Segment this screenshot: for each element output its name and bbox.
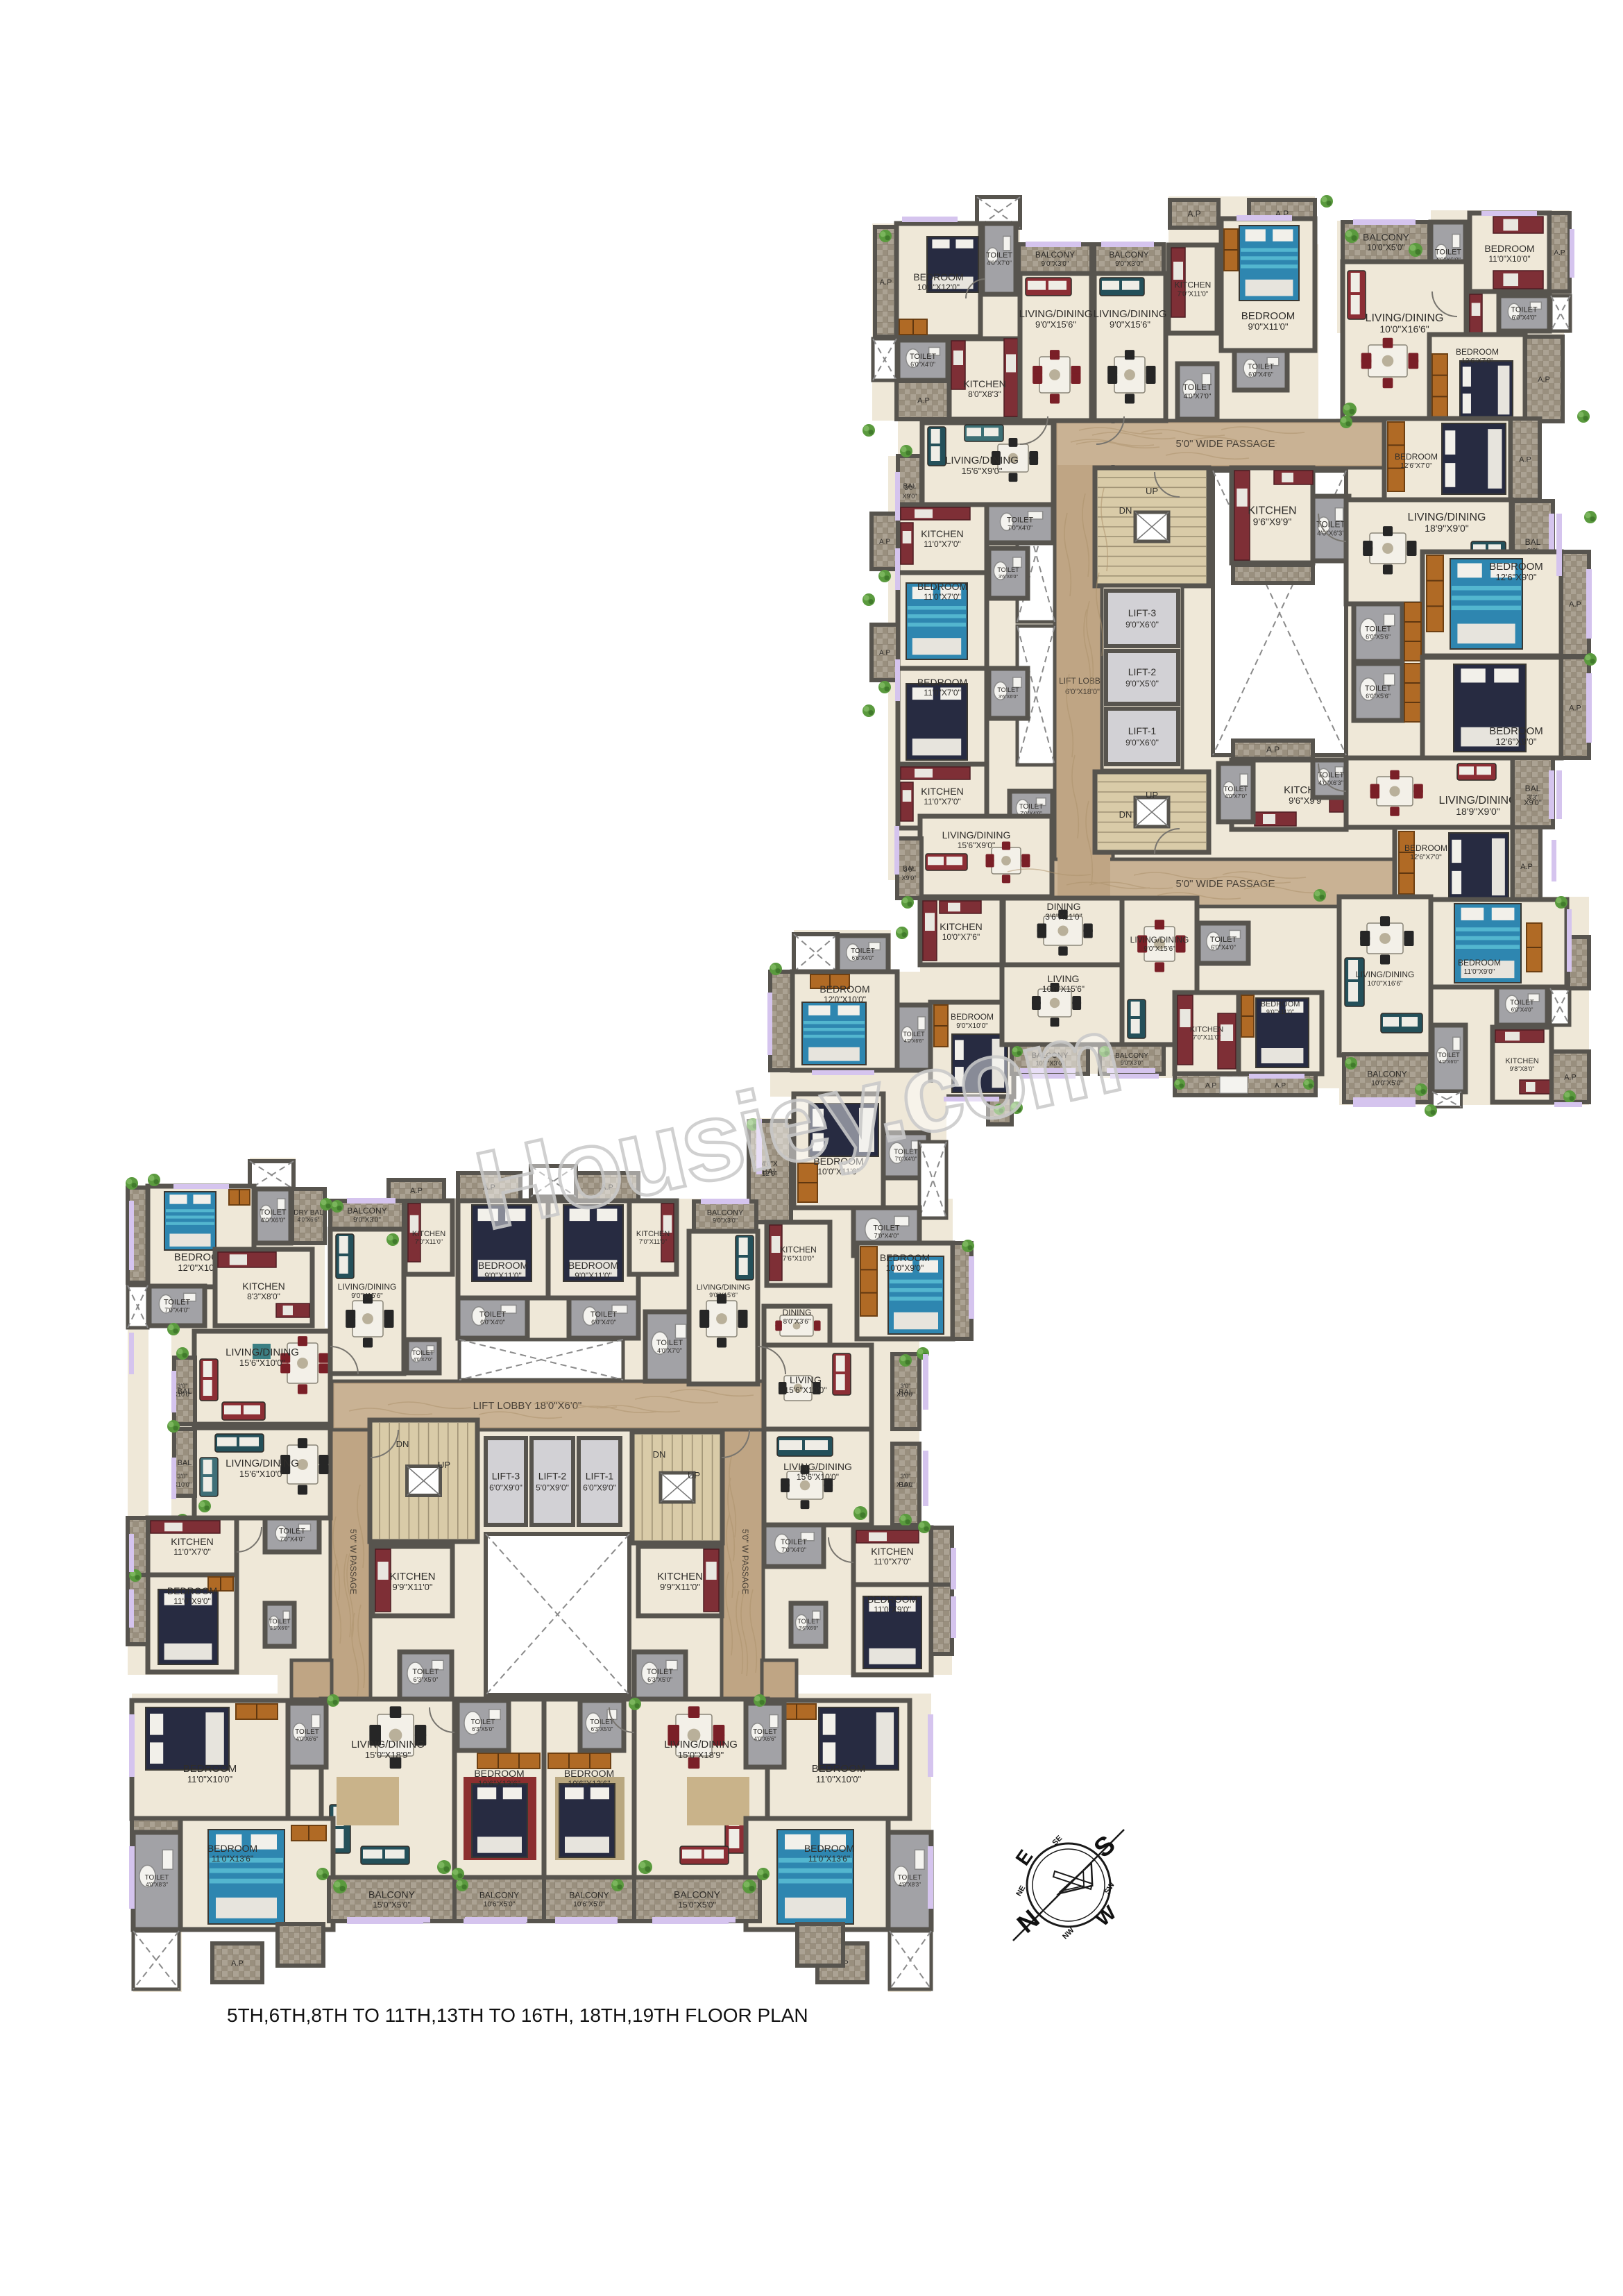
svg-text:TOILET: TOILET [1210, 936, 1237, 944]
svg-text:3'0": 3'0" [901, 1473, 911, 1480]
svg-text:11'0"X9'0": 11'0"X9'0" [1464, 968, 1495, 976]
svg-text:BEDROOM: BEDROOM [1489, 561, 1543, 573]
svg-text:3'0": 3'0" [904, 866, 915, 873]
svg-text:UP: UP [688, 1470, 700, 1480]
svg-text:BEDROOM: BEDROOM [880, 1252, 930, 1263]
svg-text:LIFT-2: LIFT-2 [1128, 666, 1157, 677]
svg-text:KITCHEN: KITCHEN [921, 786, 963, 797]
svg-text:KITCHEN: KITCHEN [871, 1546, 913, 1557]
svg-text:TOILET: TOILET [647, 1668, 674, 1676]
svg-text:4'0"X7'0": 4'0"X7'0" [657, 1347, 682, 1354]
svg-text:4'0"X6'0": 4'0"X6'0" [261, 1217, 286, 1224]
svg-text:6'0"X5'6": 6'0"X5'6" [1366, 693, 1391, 700]
svg-text:6'3"X5'0": 6'3"X5'0" [414, 1676, 439, 1683]
svg-text:TOILET: TOILET [851, 947, 875, 955]
svg-text:9'0"X3'0": 9'0"X3'0" [1121, 1060, 1143, 1066]
svg-text:10'6"X5'0": 10'6"X5'0" [484, 1901, 516, 1909]
svg-text:BALCONY: BALCONY [1367, 1070, 1407, 1079]
svg-text:BEDROOM: BEDROOM [564, 1768, 614, 1779]
svg-text:KITCHEN: KITCHEN [171, 1536, 213, 1547]
svg-text:KITCHEN: KITCHEN [412, 1230, 445, 1238]
svg-text:TOILET: TOILET [1365, 625, 1392, 634]
svg-text:12'0"X10'0": 12'0"X10'0" [824, 995, 866, 1004]
svg-text:KITCHEN: KITCHEN [1248, 505, 1296, 517]
svg-text:15'0"X5'0": 15'0"X5'0" [678, 1900, 715, 1910]
svg-text:7'6"X10'0": 7'6"X10'0" [783, 1256, 815, 1263]
svg-text:BEDROOM: BEDROOM [804, 1843, 854, 1854]
svg-text:11'0"X7'0": 11'0"X7'0" [924, 797, 961, 807]
svg-text:DINING: DINING [1047, 901, 1081, 912]
svg-text:11'0"X7'0": 11'0"X7'0" [173, 1547, 211, 1557]
svg-text:9'0"X11'0": 9'0"X11'0" [1248, 321, 1288, 332]
svg-text:8'0"X3'6": 8'0"X3'6" [783, 1318, 811, 1326]
svg-text:10'0"X16'6": 10'0"X16'6" [1379, 323, 1429, 335]
svg-text:LIVING/DINING: LIVING/DINING [664, 1739, 738, 1750]
svg-text:TOILET: TOILET [269, 1618, 291, 1625]
svg-text:9'0"X15'6": 9'0"X15'6" [1110, 319, 1150, 330]
svg-text:BEDROOM: BEDROOM [1484, 243, 1534, 254]
svg-text:10'6"X5'0": 10'6"X5'0" [573, 1901, 605, 1909]
svg-text:9'6"X9'9": 9'6"X9'9" [1253, 516, 1292, 527]
svg-text:TOILET: TOILET [1510, 999, 1534, 1007]
svg-text:BALCONY: BALCONY [479, 1891, 519, 1900]
svg-text:7'0"X4'0": 7'0"X4'0" [1008, 525, 1033, 532]
svg-text:7'0"X11'0": 7'0"X11'0" [1178, 291, 1209, 298]
svg-text:A.P: A.P [231, 1959, 244, 1968]
svg-text:6'0"X4'0": 6'0"X4'0" [1211, 944, 1236, 951]
svg-text:15'6"X10'0": 15'6"X10'0" [239, 1358, 286, 1368]
svg-text:TOILET: TOILET [910, 353, 937, 361]
svg-text:12'6"X7'0": 12'6"X7'0" [1410, 854, 1442, 861]
svg-text:9'0"X6'0": 9'0"X6'0" [1125, 620, 1159, 630]
svg-text:4'0"X6'0": 4'0"X6'0" [1439, 1060, 1459, 1065]
svg-text:BEDROOM: BEDROOM [917, 581, 967, 592]
svg-text:BEDROOM: BEDROOM [1241, 310, 1295, 322]
svg-text:7'0"X11'0": 7'0"X11'0" [415, 1238, 443, 1245]
svg-text:12'6"X9'0": 12'6"X9'0" [1495, 572, 1536, 582]
svg-text:18'9"X9'0": 18'9"X9'0" [1425, 523, 1469, 534]
svg-text:DRY BAL: DRY BAL [294, 1209, 323, 1217]
svg-text:3'6"X6'0": 3'6"X6'0" [999, 575, 1018, 580]
svg-text:A.P: A.P [1564, 1073, 1577, 1081]
svg-text:BEDROOM: BEDROOM [183, 1763, 237, 1775]
svg-text:6'0"X4'6": 6'0"X4'6" [1248, 371, 1273, 378]
svg-text:4'0"X8'3": 4'0"X8'3" [146, 1882, 168, 1888]
svg-text:9'0"X6'0": 9'0"X6'0" [1125, 738, 1159, 748]
svg-text:5'0" W PASSAGE: 5'0" W PASSAGE [348, 1529, 358, 1594]
svg-text:TOILET: TOILET [656, 1339, 683, 1347]
svg-text:4'0"X6'3": 4'0"X6'3" [1318, 779, 1343, 786]
svg-text:11'0"X10'0": 11'0"X10'0" [1488, 254, 1530, 264]
svg-text:TOILET: TOILET [797, 1618, 819, 1625]
svg-text:TOILET: TOILET [295, 1728, 319, 1736]
svg-text:BAL: BAL [178, 1459, 192, 1467]
svg-text:LIVING/DINING: LIVING/DINING [226, 1458, 299, 1469]
svg-text:11'0"X9'0": 11'0"X9'0" [173, 1596, 211, 1606]
svg-text:9'0"X3'0": 9'0"X3'0" [713, 1217, 738, 1224]
svg-text:TOILET: TOILET [145, 1874, 169, 1882]
svg-text:7'0"X4'0": 7'0"X4'0" [164, 1307, 189, 1314]
svg-text:8'3"X8'0": 8'3"X8'0" [247, 1292, 280, 1301]
svg-text:9'0"X15'6": 9'0"X15'6" [709, 1292, 738, 1299]
svg-text:LIVING/DINING: LIVING/DINING [1094, 308, 1167, 320]
svg-text:LIFT LOBBY: LIFT LOBBY [1059, 676, 1106, 686]
svg-text:10'6"X13'6": 10'6"X13'6" [478, 1779, 520, 1789]
svg-text:6'3"X5'0": 6'3"X5'0" [472, 1726, 494, 1732]
svg-text:6'0"X4'0": 6'0"X4'0" [1512, 314, 1537, 321]
svg-text:DN: DN [1119, 809, 1132, 820]
svg-text:TOILET: TOILET [873, 1224, 900, 1233]
svg-text:KITCHEN: KITCHEN [636, 1230, 670, 1238]
svg-text:11'0"X7'0": 11'0"X7'0" [924, 539, 961, 549]
svg-text:LIVING/DINING: LIVING/DINING [226, 1347, 299, 1358]
svg-text:4'0"X7'0": 4'0"X7'0" [1184, 393, 1212, 400]
svg-text:10'0"X7'6": 10'0"X7'6" [942, 932, 980, 942]
svg-text:BEDROOM: BEDROOM [1395, 452, 1438, 462]
svg-text:11'0"X7'0": 11'0"X7'0" [874, 1557, 911, 1567]
svg-text:10'0"X12'0": 10'0"X12'0" [917, 282, 960, 292]
svg-text:TOILET: TOILET [1435, 248, 1462, 257]
svg-text:LIFT-2: LIFT-2 [538, 1471, 567, 1482]
svg-text:9'0"X15'6": 9'0"X15'6" [1035, 319, 1076, 330]
svg-text:LIFT-1: LIFT-1 [586, 1471, 614, 1482]
svg-text:LIVING/DINING: LIVING/DINING [1130, 935, 1189, 945]
svg-text:3'0": 3'0" [905, 484, 915, 491]
svg-text:TOILET: TOILET [590, 1310, 618, 1319]
svg-text:BEDROOM: BEDROOM [819, 984, 869, 995]
svg-text:TOILET: TOILET [1007, 516, 1034, 525]
svg-text:4'0"X7'0": 4'0"X7'0" [1225, 793, 1247, 800]
svg-text:BALCONY: BALCONY [1363, 232, 1410, 243]
svg-text:9'0"X5'0": 9'0"X5'0" [1125, 679, 1159, 689]
svg-text:7'0"X11'0": 7'0"X11'0" [639, 1238, 667, 1245]
svg-text:6'6"X4'0": 6'6"X4'0" [852, 955, 874, 961]
svg-text:LIVING: LIVING [790, 1374, 822, 1385]
svg-text:12'6"X9'0": 12'6"X9'0" [1495, 736, 1536, 747]
svg-text:7'0"X11'0": 7'0"X11'0" [1193, 1034, 1221, 1041]
svg-text:6'0"X9'0": 6'0"X9'0" [583, 1483, 616, 1493]
svg-text:KITCHEN: KITCHEN [242, 1281, 284, 1292]
svg-text:4'0"X7'0": 4'0"X7'0" [414, 1358, 433, 1362]
svg-text:BEDROOM: BEDROOM [1489, 725, 1543, 737]
svg-text:X10'0": X10'0" [897, 1481, 915, 1488]
svg-text:4'0"X6'6": 4'0"X6'6" [754, 1736, 776, 1742]
svg-text:TOILET: TOILET [1183, 382, 1212, 392]
svg-text:9'0"X11'0": 9'0"X11'0" [575, 1271, 612, 1281]
svg-text:3'6"X11'0": 3'6"X11'0" [1045, 912, 1082, 922]
svg-text:BEDROOM: BEDROOM [207, 1843, 257, 1854]
svg-text:TOILET: TOILET [479, 1310, 507, 1319]
svg-text:TOILET: TOILET [164, 1299, 191, 1307]
svg-text:BEDROOM: BEDROOM [478, 1260, 528, 1271]
svg-text:A.P: A.P [1266, 745, 1280, 754]
svg-text:BAL: BAL [1525, 784, 1541, 793]
svg-text:LIVING/DINING: LIVING/DINING [1356, 970, 1415, 979]
svg-text:7'0"X4'0": 7'0"X4'0" [781, 1546, 806, 1553]
svg-text:TOILET: TOILET [997, 566, 1019, 573]
svg-text:BEDROOM: BEDROOM [167, 1585, 217, 1596]
svg-text:KITCHEN: KITCHEN [1175, 280, 1212, 290]
svg-text:9'0"X3'0": 9'0"X3'0" [353, 1217, 381, 1224]
svg-text:A.P: A.P [1569, 704, 1581, 712]
svg-text:BEDROOM: BEDROOM [568, 1260, 618, 1271]
svg-text:9'0"X11'0": 9'0"X11'0" [484, 1271, 522, 1281]
svg-text:10'6"X13'6": 10'6"X13'6" [568, 1779, 610, 1789]
svg-text:TOILET: TOILET [781, 1538, 808, 1546]
svg-text:TOILET: TOILET [260, 1208, 287, 1217]
svg-text:X9'0": X9'0" [1524, 799, 1542, 807]
svg-text:X10'0": X10'0" [897, 1391, 915, 1398]
svg-text:6'0"X4'0": 6'0"X4'0" [910, 361, 935, 368]
svg-text:A.P: A.P [410, 1187, 423, 1195]
svg-text:KITCHEN: KITCHEN [657, 1571, 703, 1582]
svg-text:3'0": 3'0" [178, 1383, 188, 1390]
svg-text:15'6"X9'0": 15'6"X9'0" [958, 841, 995, 850]
svg-text:5'0" WIDE PASSAGE: 5'0" WIDE PASSAGE [1176, 878, 1275, 890]
svg-text:15'0"X5'0": 15'0"X5'0" [373, 1900, 410, 1910]
svg-text:BEDROOM: BEDROOM [812, 1763, 866, 1775]
svg-text:KITCHEN: KITCHEN [940, 921, 982, 932]
svg-text:BEDROOM: BEDROOM [1404, 843, 1447, 853]
svg-text:DN: DN [396, 1439, 409, 1449]
svg-text:KITCHEN: KITCHEN [921, 528, 963, 539]
svg-text:A.P: A.P [880, 278, 892, 287]
svg-text:DINING: DINING [783, 1308, 812, 1317]
svg-text:15'0"X18'9": 15'0"X18'9" [365, 1750, 411, 1760]
svg-text:6'3"X5'0": 6'3"X5'0" [647, 1676, 672, 1683]
svg-text:LIVING/DINING: LIVING/DINING [783, 1461, 852, 1472]
svg-text:LIVING/DINING: LIVING/DINING [1439, 795, 1518, 807]
svg-text:TOILET: TOILET [1248, 363, 1275, 371]
svg-text:3'6"X6'0": 3'6"X6'0" [799, 1626, 818, 1631]
svg-text:15'6"X10'0": 15'6"X10'0" [784, 1385, 826, 1395]
svg-text:BALCONY: BALCONY [368, 1889, 416, 1900]
svg-text:4'0"X8'3": 4'0"X8'3" [899, 1882, 921, 1888]
svg-text:BEDROOM: BEDROOM [917, 677, 967, 688]
svg-text:10'0"X5'0": 10'0"X5'0" [1371, 1080, 1403, 1088]
svg-text:15'6"X10'0": 15'6"X10'0" [239, 1469, 286, 1479]
svg-text:BALCONY: BALCONY [1115, 1052, 1148, 1060]
svg-text:15'6"X10'0": 15'6"X10'0" [797, 1472, 839, 1482]
svg-text:KITCHEN: KITCHEN [390, 1571, 436, 1582]
svg-text:UP: UP [438, 1460, 450, 1470]
svg-text:KITCHEN: KITCHEN [1190, 1026, 1223, 1034]
svg-text:3'6"X6'0": 3'6"X6'0" [270, 1626, 289, 1631]
svg-text:TOILET: TOILET [1438, 1052, 1460, 1058]
svg-text:11'0"X13'6": 11'0"X13'6" [808, 1854, 850, 1864]
svg-text:A.P: A.P [1569, 600, 1581, 609]
svg-text:4'0"X6'6": 4'0"X6'6" [296, 1736, 318, 1742]
svg-text:4'0"X7'0": 4'0"X7'0" [987, 260, 1012, 267]
svg-text:BALCONY: BALCONY [707, 1209, 744, 1217]
svg-text:12'6"X7'0": 12'6"X7'0" [1400, 462, 1432, 470]
svg-text:5'0"X9'0": 5'0"X9'0" [536, 1483, 569, 1493]
svg-text:3'0": 3'0" [178, 1473, 188, 1480]
svg-text:TOILET: TOILET [1511, 306, 1538, 314]
svg-text:11'0"X7'0": 11'0"X7'0" [924, 592, 961, 602]
svg-text:11'0"X13'6": 11'0"X13'6" [212, 1854, 253, 1864]
svg-text:TOILET: TOILET [753, 1728, 777, 1736]
svg-text:X9'0": X9'0" [902, 875, 917, 881]
svg-text:BEDROOM: BEDROOM [867, 1594, 917, 1605]
svg-text:15'0"X18'9": 15'0"X18'9" [678, 1750, 724, 1760]
svg-text:9'8"X8'0": 9'8"X8'0" [1510, 1065, 1535, 1072]
svg-text:LIVING/DINING: LIVING/DINING [697, 1283, 751, 1292]
svg-text:A.P: A.P [879, 539, 890, 546]
svg-text:9'0"X3'0": 9'0"X3'0" [1115, 260, 1143, 268]
svg-text:TOILET: TOILET [279, 1528, 306, 1536]
svg-text:A.P: A.P [1519, 455, 1531, 464]
svg-text:6'0"X4'0": 6'0"X4'0" [591, 1319, 616, 1326]
svg-text:UP: UP [1146, 486, 1158, 496]
svg-text:UP: UP [1146, 790, 1158, 800]
svg-text:15'6"X9'0": 15'6"X9'0" [961, 466, 1002, 476]
svg-text:BEDROOM: BEDROOM [1458, 958, 1501, 968]
svg-text:TOILET: TOILET [898, 1874, 922, 1882]
svg-text:LIVING/DINING: LIVING/DINING [338, 1282, 397, 1292]
svg-text:KITCHEN: KITCHEN [1505, 1057, 1538, 1065]
svg-text:A.P: A.P [879, 650, 890, 657]
svg-text:8'0"X8'3": 8'0"X8'3" [968, 389, 1001, 399]
svg-text:6'0"X18'0": 6'0"X18'0" [1065, 688, 1100, 696]
svg-text:TOILET: TOILET [590, 1719, 614, 1726]
svg-text:9'0"X15'6": 9'0"X15'6" [351, 1292, 383, 1300]
svg-text:A.P: A.P [1538, 375, 1550, 384]
svg-text:18'9"X9'0": 18'9"X9'0" [1456, 806, 1500, 817]
svg-text:BEDROOM: BEDROOM [1456, 347, 1499, 357]
svg-text:A.P: A.P [1554, 249, 1565, 257]
svg-text:11'0"X9'0": 11'0"X9'0" [874, 1605, 911, 1614]
svg-text:LIVING/DINING: LIVING/DINING [1408, 512, 1486, 523]
svg-text:7'0"X4'0": 7'0"X4'0" [280, 1536, 305, 1543]
svg-text:TOILET: TOILET [471, 1719, 495, 1726]
svg-text:10'0"X9'0": 10'0"X9'0" [886, 1263, 924, 1273]
svg-text:DN: DN [1119, 505, 1132, 516]
svg-text:9'9"X11'0": 9'9"X11'0" [392, 1582, 432, 1592]
svg-text:LIVING/DINING: LIVING/DINING [1019, 308, 1093, 320]
svg-text:5TH,6TH,8TH TO 11TH,13TH TO 16: 5TH,6TH,8TH TO 11TH,13TH TO 16TH, 18TH,1… [227, 2004, 808, 2026]
svg-text:TOILET: TOILET [412, 1668, 439, 1676]
svg-text:6'3"X5'0": 6'3"X5'0" [591, 1726, 613, 1732]
svg-text:LIFT-3: LIFT-3 [1128, 607, 1157, 618]
svg-text:11'0"X7'0": 11'0"X7'0" [924, 688, 961, 698]
svg-text:3'0": 3'0" [901, 1383, 911, 1390]
svg-text:3'6"X6'0": 3'6"X6'0" [999, 695, 1018, 700]
svg-text:BEDROOM: BEDROOM [1261, 1000, 1300, 1008]
svg-text:KITCHEN: KITCHEN [963, 378, 1005, 389]
svg-text:TOILET: TOILET [986, 251, 1013, 260]
svg-text:6'0"X5'6": 6'0"X5'6" [1366, 634, 1391, 641]
svg-text:11'0"X10'0": 11'0"X10'0" [816, 1774, 862, 1784]
svg-text:5'0" W PASSAGE: 5'0" W PASSAGE [740, 1529, 750, 1594]
svg-text:6'0"X9'0": 6'0"X9'0" [489, 1483, 522, 1493]
svg-text:LIFT-3: LIFT-3 [492, 1471, 520, 1482]
svg-text:A.P: A.P [917, 396, 930, 405]
svg-text:LIVING/DINING: LIVING/DINING [1366, 312, 1444, 324]
svg-text:BEDROOM: BEDROOM [913, 271, 963, 282]
svg-text:TOILET: TOILET [997, 686, 1019, 693]
svg-text:BALCONY: BALCONY [1109, 250, 1148, 260]
svg-text:9'9"X11'0": 9'9"X11'0" [660, 1582, 700, 1592]
svg-text:A.P: A.P [1520, 863, 1533, 871]
svg-text:TOILET: TOILET [1365, 684, 1392, 693]
svg-text:6'0"X4'0": 6'0"X4'0" [480, 1319, 505, 1326]
svg-text:10'0"X16'6": 10'0"X16'6" [1368, 980, 1403, 988]
svg-text:9'0"X11'0": 9'0"X11'0" [1266, 1008, 1294, 1015]
svg-text:LIFT-1: LIFT-1 [1128, 725, 1157, 736]
svg-text:7'0"X4'0": 7'0"X4'0" [874, 1233, 899, 1240]
svg-text:BALCONY: BALCONY [674, 1889, 721, 1900]
svg-text:TOILET: TOILET [1019, 803, 1044, 811]
svg-text:LIVING/DINING: LIVING/DINING [942, 829, 1011, 841]
svg-text:10'0"X15'6": 10'0"X15'6" [1042, 984, 1085, 994]
svg-text:LIVING/DINING: LIVING/DINING [351, 1739, 425, 1750]
svg-text:X9'0": X9'0" [903, 493, 917, 500]
svg-text:12'6"X7'0": 12'6"X7'0" [1461, 357, 1493, 365]
svg-text:A.P: A.P [1205, 1082, 1216, 1090]
svg-text:BALCONY: BALCONY [569, 1891, 609, 1900]
svg-text:BALCONY: BALCONY [1035, 250, 1075, 260]
svg-text:9'0"X15'6": 9'0"X15'6" [1144, 945, 1175, 953]
svg-text:6'0"X4'0": 6'0"X4'0" [1511, 1007, 1533, 1013]
svg-text:BALCONY: BALCONY [347, 1206, 386, 1216]
svg-text:9'0"X3'0": 9'0"X3'0" [1042, 260, 1069, 268]
svg-text:10'0"X5'0": 10'0"X5'0" [1367, 243, 1404, 253]
svg-text:TOILET: TOILET [1224, 786, 1248, 793]
svg-text:BAL: BAL [1525, 537, 1541, 547]
svg-text:A.P: A.P [1275, 1082, 1286, 1090]
svg-text:BEDROOM: BEDROOM [474, 1768, 524, 1779]
svg-text:KITCHEN: KITCHEN [780, 1245, 817, 1255]
svg-text:A.P: A.P [1187, 209, 1200, 219]
svg-text:4'0"X6'6": 4'0"X6'6" [298, 1217, 320, 1223]
svg-text:LIVING/DINING: LIVING/DINING [945, 455, 1019, 466]
svg-text:LIVING: LIVING [1048, 973, 1080, 984]
svg-text:11'0"X10'0": 11'0"X10'0" [187, 1774, 233, 1784]
svg-text:TOILET: TOILET [412, 1349, 434, 1356]
svg-text:DN: DN [653, 1449, 666, 1460]
